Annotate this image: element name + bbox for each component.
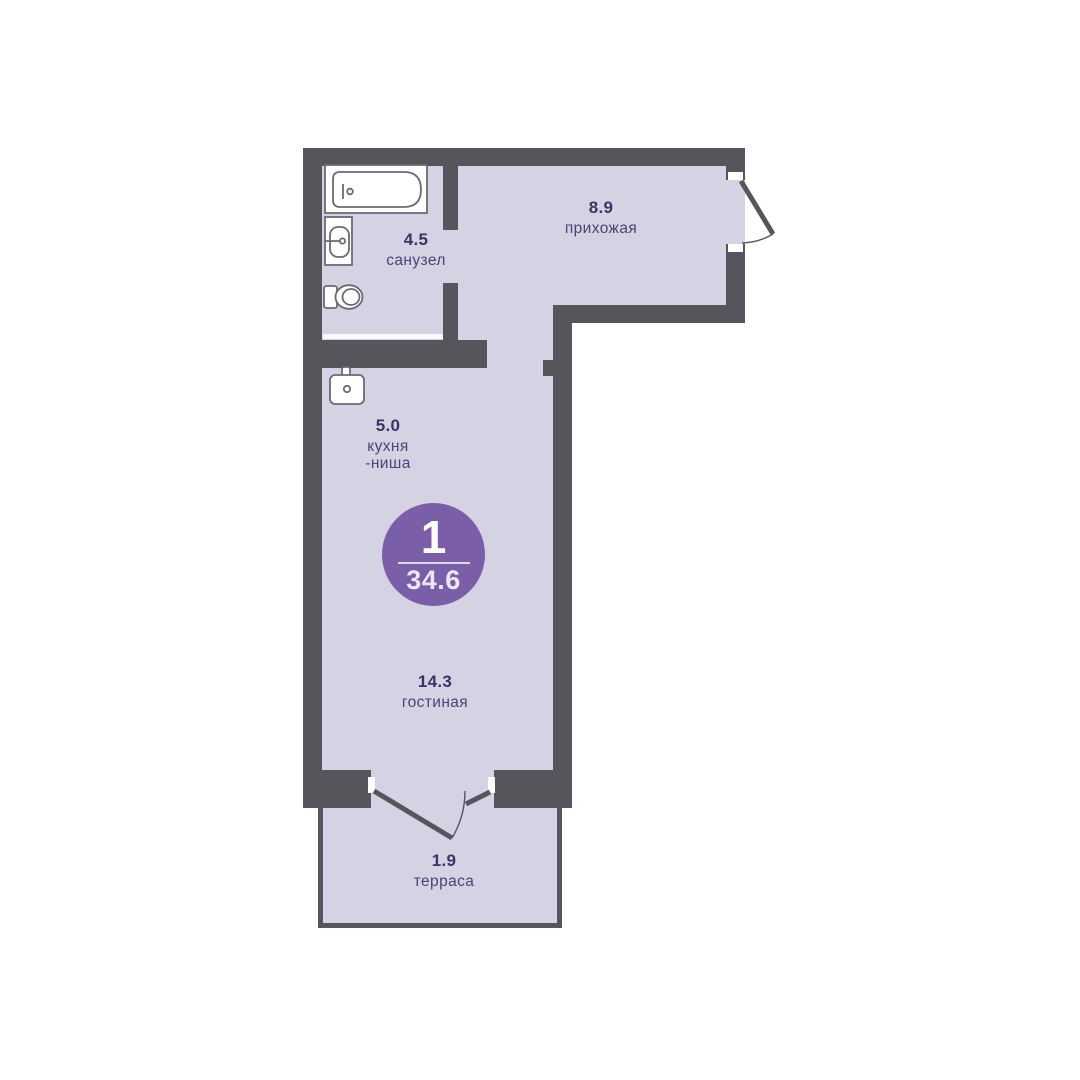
room-area: 1.9: [414, 851, 475, 870]
wall-bathroom-right-lower: [443, 283, 458, 340]
room-area: 14.3: [402, 672, 468, 691]
wall-bathroom-right-upper: [443, 166, 458, 230]
room-area: 4.5: [386, 230, 446, 249]
sink-icon: [325, 217, 352, 265]
unit-badge: 1 34.6: [382, 503, 485, 606]
room-name: терраса: [414, 873, 475, 890]
wall-pier: [543, 360, 553, 376]
door-jamb: [368, 777, 375, 793]
door-jamb: [728, 172, 743, 180]
room-label-sanuzel: 4.5 санузел: [386, 230, 446, 269]
room-name: прихожая: [565, 220, 637, 237]
unit-rooms-count: 1: [421, 517, 447, 557]
wall-top: [303, 148, 745, 166]
room-name: санузел: [386, 252, 446, 269]
bathtub-icon: [325, 165, 427, 213]
room-label-terrasa: 1.9 терраса: [414, 851, 475, 890]
room-name: гостиная: [402, 694, 468, 711]
wall-livingroom-bottom-right: [494, 770, 572, 808]
room-label-kuhnya: 5.0 кухня -ниша: [365, 416, 410, 472]
wall-hallway-bottom: [553, 305, 745, 323]
room-name-line2: -ниша: [365, 455, 410, 472]
badge-divider: [398, 562, 470, 564]
door-jamb: [728, 244, 743, 252]
floor-plan-page: 4.5 санузел 8.9 прихожая 5.0 кухня -ниша…: [0, 0, 1080, 1080]
unit-total-area: 34.6: [406, 567, 461, 593]
floor-plan-drawing: [0, 0, 1080, 1080]
room-area: 5.0: [365, 416, 410, 435]
apartment-floor: [303, 148, 745, 808]
door-swing-arc: [742, 234, 773, 243]
wall-inner-vertical: [553, 305, 572, 808]
door-leaf: [741, 181, 773, 234]
wall-left: [303, 148, 322, 808]
wall-bathroom-bottom: [303, 340, 487, 368]
room-name: кухня: [365, 438, 410, 455]
room-label-prihozhaya: 8.9 прихожая: [565, 198, 637, 237]
wall-livingroom-bottom-left: [303, 770, 371, 808]
wall-highlight: [323, 334, 443, 339]
room-area: 8.9: [565, 198, 637, 217]
room-label-gostinaya: 14.3 гостиная: [402, 672, 468, 711]
toilet-icon: [324, 285, 363, 309]
